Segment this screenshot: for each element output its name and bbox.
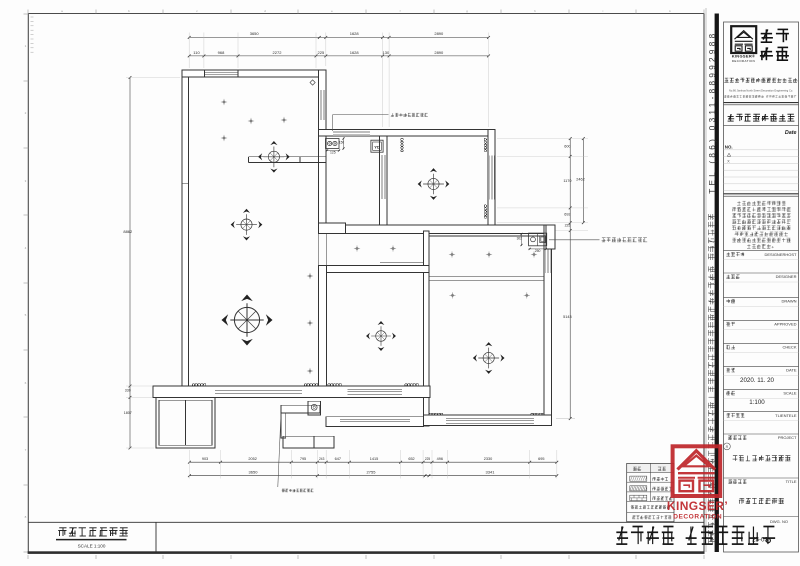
svg-text:DATE: DATE <box>786 368 797 373</box>
svg-text:2462: 2462 <box>576 178 584 182</box>
svg-text:130: 130 <box>383 50 390 55</box>
svg-text:903: 903 <box>202 457 208 461</box>
svg-text:1:100: 1:100 <box>749 399 765 406</box>
svg-text:DWG. NO: DWG. NO <box>770 519 788 524</box>
svg-text:DESIGNER: DESIGNER <box>776 274 797 279</box>
svg-text:TITLE: TITLE <box>786 479 797 484</box>
svg-text:302: 302 <box>517 237 523 241</box>
svg-text:TEL (86) 0311-88992988: TEL (86) 0311-88992988 <box>708 33 717 193</box>
svg-text:125: 125 <box>330 151 336 155</box>
svg-text:1170: 1170 <box>563 179 571 183</box>
svg-text:R: R <box>726 445 729 449</box>
svg-text:2020. 11. 20: 2020. 11. 20 <box>740 377 775 384</box>
svg-text:8862: 8862 <box>123 229 133 234</box>
svg-text:330: 330 <box>125 389 131 393</box>
svg-text:225: 225 <box>565 224 571 228</box>
svg-text:PROJECT: PROJECT <box>778 435 797 440</box>
svg-text:2272: 2272 <box>273 50 283 55</box>
svg-text:110: 110 <box>193 50 200 55</box>
svg-text:DECORATION: DECORATION <box>732 59 755 63</box>
svg-text:2890: 2890 <box>434 31 444 36</box>
svg-text:NO.: NO. <box>725 145 733 150</box>
svg-text:692: 692 <box>564 212 570 216</box>
svg-text:DESIGNERHOST: DESIGNERHOST <box>764 252 797 257</box>
svg-text:600: 600 <box>564 145 570 149</box>
svg-text:695: 695 <box>538 457 544 461</box>
svg-text:647: 647 <box>335 457 341 461</box>
svg-text:25-03: 25-03 <box>752 537 768 544</box>
svg-text:225: 225 <box>425 457 431 461</box>
svg-text:3341: 3341 <box>486 470 496 475</box>
svg-text:2330: 2330 <box>484 457 492 461</box>
svg-text:DECORATION: DECORATION <box>673 514 722 521</box>
svg-text:250: 250 <box>535 249 541 253</box>
svg-text:TLIENTELE: TLIENTELE <box>775 413 797 418</box>
svg-text:YD: YD <box>374 144 380 149</box>
svg-text:3650: 3650 <box>250 31 260 36</box>
svg-text:3650: 3650 <box>249 470 259 475</box>
svg-text:496: 496 <box>437 457 443 461</box>
svg-text:APPROVED: APPROVED <box>774 322 796 327</box>
svg-text:243: 243 <box>319 457 325 461</box>
svg-text:2755: 2755 <box>367 470 377 475</box>
svg-text:KINGSER®: KINGSER® <box>732 53 756 58</box>
svg-text:968: 968 <box>218 50 225 55</box>
svg-text:No.86 Jianhua North Street Dec: No.86 Jianhua North Street Decoration En… <box>729 88 793 92</box>
svg-text:SCALE 1:100: SCALE 1:100 <box>78 544 106 549</box>
svg-text:2052: 2052 <box>248 457 256 461</box>
svg-text:2890: 2890 <box>434 50 444 55</box>
svg-text:5143: 5143 <box>563 315 571 319</box>
svg-text:225: 225 <box>318 50 325 55</box>
svg-text:CHECK: CHECK <box>782 345 796 350</box>
svg-text:1628: 1628 <box>350 31 360 36</box>
svg-text:KINGSER’: KINGSER’ <box>667 499 728 513</box>
svg-text:DRAWN: DRAWN <box>782 299 797 304</box>
svg-text:150: 150 <box>339 141 345 145</box>
svg-text:SCALE: SCALE <box>783 391 796 396</box>
svg-text:1628: 1628 <box>350 50 360 55</box>
svg-text:1807: 1807 <box>124 411 132 415</box>
svg-text:Date: Date <box>785 130 797 136</box>
svg-text:1415: 1415 <box>370 457 378 461</box>
svg-text:795: 795 <box>300 457 306 461</box>
svg-text:652: 652 <box>408 457 414 461</box>
